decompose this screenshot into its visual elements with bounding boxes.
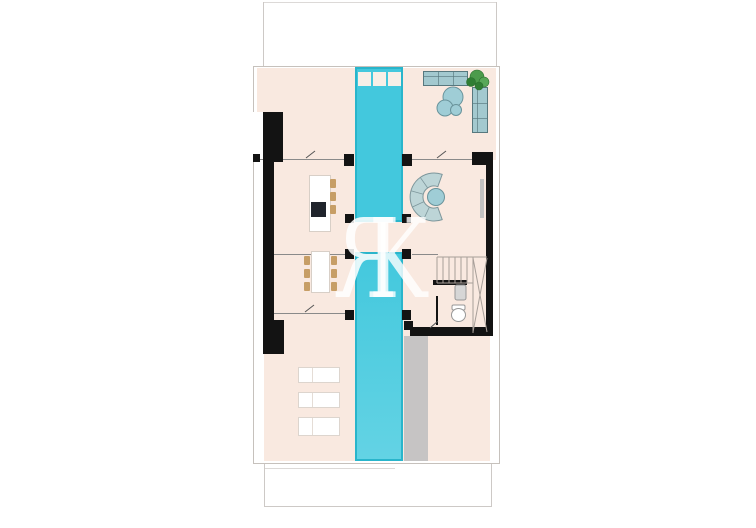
pillar [253, 154, 260, 162]
wall-bottom [410, 327, 493, 336]
wall-left-thick-upper [263, 112, 283, 162]
bar-stool [330, 192, 336, 201]
dining-chair [331, 269, 337, 278]
dining-chair [304, 282, 310, 291]
glass-wall-line [274, 254, 346, 255]
site-boundary-line [491, 462, 492, 507]
dining-table [311, 251, 330, 293]
site-boundary-line [264, 468, 395, 469]
floor-plan-canvas: R K [0, 0, 756, 528]
wall-left-thick-lower [263, 320, 284, 354]
pool-step [373, 72, 386, 86]
sunbed [298, 417, 340, 436]
sunbed [298, 367, 340, 383]
dining-chair [304, 256, 310, 265]
window-line [480, 179, 484, 218]
dining-chair [331, 282, 337, 291]
pool-step [388, 72, 401, 86]
setback-margin [253, 112, 263, 160]
outdoor-sofa-vertical [472, 87, 488, 133]
pool-step [358, 72, 371, 86]
cooktop [311, 202, 326, 217]
sun-deck [404, 336, 428, 461]
watermark-letter-k: K [369, 204, 427, 314]
site-boundary-line [263, 2, 497, 3]
wall-stairs-bar [433, 280, 467, 285]
glass-wall-line [274, 313, 346, 314]
site-boundary-line [263, 2, 264, 66]
pillar [402, 154, 412, 166]
dining-chair [331, 256, 337, 265]
wall-bath-door-post [436, 296, 438, 325]
bar-stool [330, 205, 336, 214]
site-boundary-line [496, 2, 497, 66]
sunbed [298, 392, 340, 408]
wall-left-thin [263, 162, 274, 320]
pillar [344, 154, 354, 166]
glass-wall-line [412, 159, 472, 160]
bar-stool [330, 179, 336, 188]
dining-chair [304, 269, 310, 278]
site-boundary-line [264, 506, 492, 507]
wall-right [486, 152, 493, 336]
outdoor-sofa-horizontal [423, 71, 468, 86]
